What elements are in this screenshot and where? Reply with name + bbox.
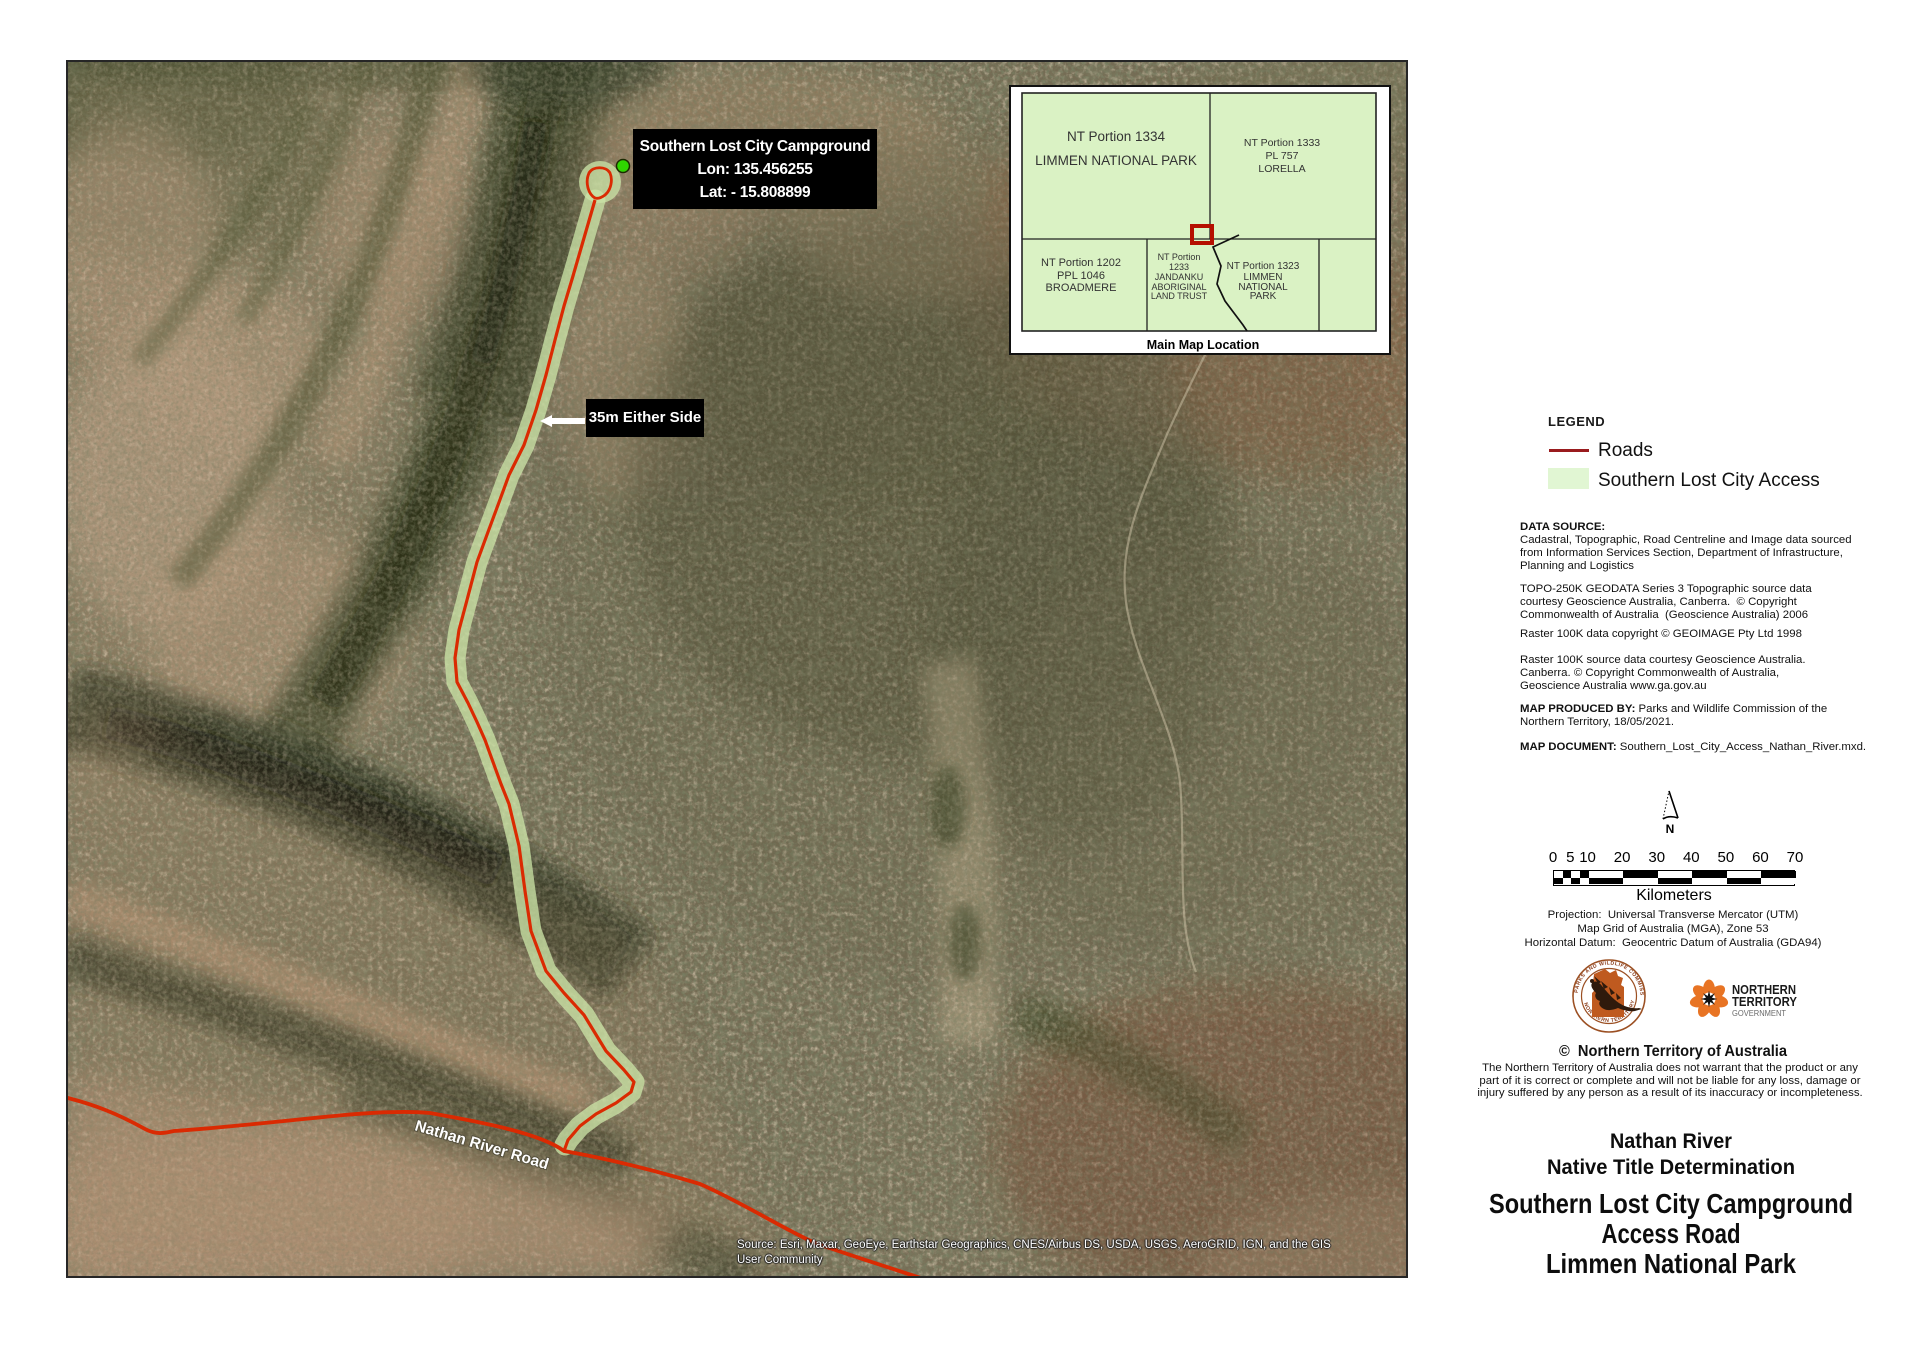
svg-text:NT Portion 1334: NT Portion 1334: [1067, 129, 1166, 144]
svg-text:Southern Lost City Campground: Southern Lost City Campground: [1489, 1188, 1853, 1219]
svg-text:Main Map Location: Main Map Location: [1147, 338, 1260, 352]
svg-text:LIMMEN NATIONAL PARK: LIMMEN NATIONAL PARK: [1035, 153, 1197, 168]
svg-text:1233: 1233: [1169, 262, 1189, 272]
svg-text:N: N: [1666, 822, 1675, 836]
svg-text:JANDANKU: JANDANKU: [1155, 272, 1204, 282]
svg-text:LORELLA: LORELLA: [1258, 163, 1305, 175]
svg-text:PL 757: PL 757: [1266, 150, 1299, 162]
svg-text:Limmen National Park: Limmen National Park: [1546, 1248, 1797, 1279]
svg-text:PARK: PARK: [1250, 291, 1277, 302]
svg-text:GOVERNMENT: GOVERNMENT: [1732, 1009, 1786, 1018]
svg-text:LAND TRUST: LAND TRUST: [1151, 291, 1208, 301]
svg-text:Nathan River: Nathan River: [1610, 1129, 1733, 1153]
svg-text:Native Title Determination: Native Title Determination: [1547, 1155, 1795, 1179]
svg-text:© Northern Territory of Austr: © Northern Territory of Australia: [1559, 1043, 1787, 1060]
svg-text:TERRITORY: TERRITORY: [1732, 994, 1797, 1009]
svg-text:Access Road: Access Road: [1602, 1218, 1741, 1249]
svg-text:BROADMERE: BROADMERE: [1046, 282, 1117, 294]
svg-text:NT Portion 1202: NT Portion 1202: [1041, 257, 1121, 269]
svg-text:NT Portion 1323: NT Portion 1323: [1227, 261, 1300, 272]
svg-text:NT Portion: NT Portion: [1158, 252, 1201, 262]
svg-text:PPL 1046: PPL 1046: [1057, 270, 1105, 282]
svg-text:NT Portion 1333: NT Portion 1333: [1244, 137, 1320, 149]
